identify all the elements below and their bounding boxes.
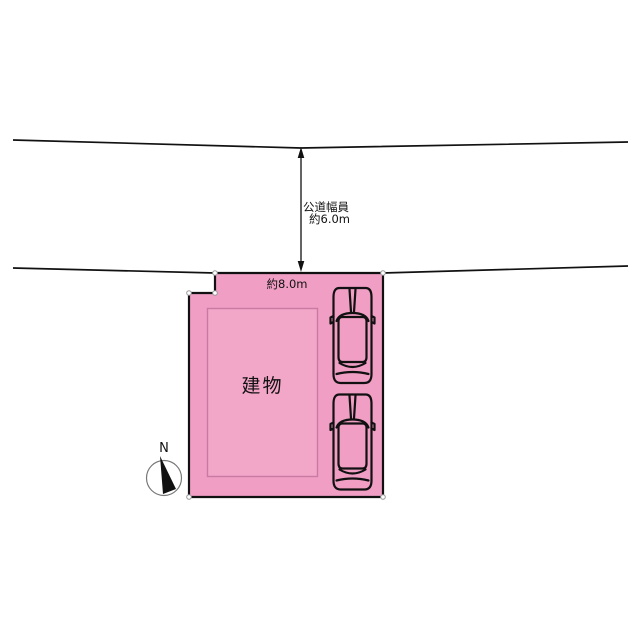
dimension-arrowhead-down (298, 261, 305, 272)
vertex-marker (187, 495, 192, 500)
site-plan-drawing (0, 0, 640, 640)
vertex-marker (381, 271, 386, 276)
road-width-label-line2: 約6.0m (303, 213, 350, 225)
road-width-label: 公道幅員 約6.0m (303, 201, 350, 225)
road-lower-edge-right-line (383, 266, 628, 273)
compass-north-label: N (152, 441, 176, 456)
vertex-marker (213, 291, 218, 296)
plot-frontage-label: 約8.0m (247, 276, 327, 292)
road-upper-edge-line (13, 140, 628, 148)
vertex-marker (381, 495, 386, 500)
building-label: 建物 (207, 371, 318, 398)
road-lower-edge-left-line (13, 268, 215, 273)
vertex-marker (187, 291, 192, 296)
compass (147, 456, 182, 496)
site-plan-canvas: 公道幅員 約6.0m 約8.0m 建物 N (0, 0, 640, 640)
vertex-marker (213, 271, 218, 276)
